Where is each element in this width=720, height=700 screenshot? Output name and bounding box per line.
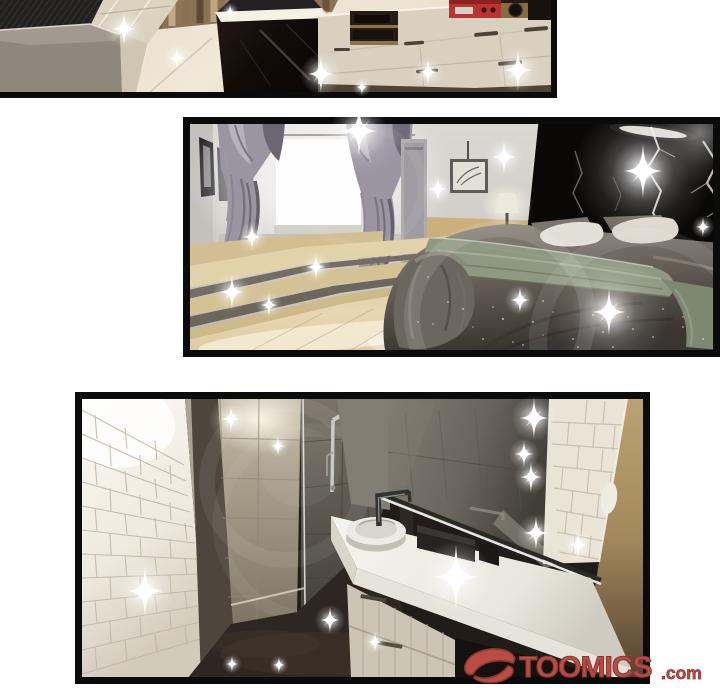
svg-text:TOOMICS: TOOMICS: [519, 651, 651, 684]
svg-text:.com: .com: [661, 663, 702, 683]
